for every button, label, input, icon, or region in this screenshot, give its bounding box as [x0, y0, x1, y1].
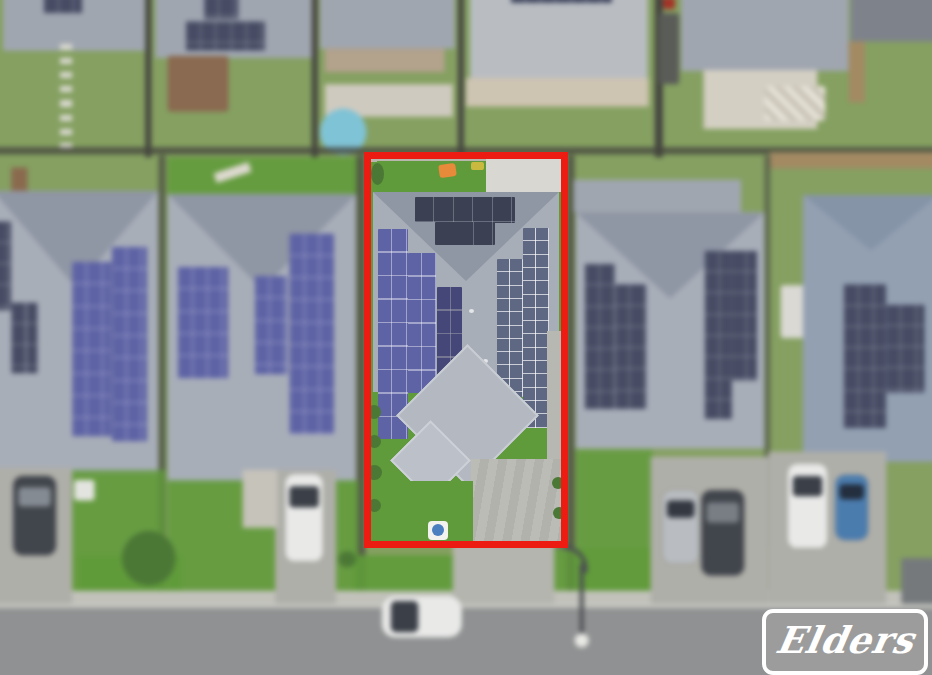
rear-neighbor-roof-4: [681, 0, 848, 71]
street-light-pole: [580, 563, 584, 640]
shrub: [338, 551, 356, 567]
bin: [74, 480, 94, 500]
solar-array: [178, 267, 229, 379]
tan-fence: [769, 152, 932, 168]
car-on-road: [382, 596, 462, 638]
aerial-listing-photo: Elders: [0, 0, 932, 675]
solar-array: [112, 247, 148, 442]
solar-array: [255, 276, 287, 374]
parked-car: [788, 464, 828, 548]
side-yard-items: [659, 13, 679, 84]
property-boundary-outline: [364, 152, 568, 548]
outdoor-furniture: [764, 86, 825, 121]
street-light-base: [575, 633, 589, 647]
parked-car: [663, 490, 699, 563]
rear-neighbor-roof-3: [320, 0, 455, 49]
solar-array: [732, 251, 757, 381]
rear-neighbor-roof-5: [851, 0, 932, 42]
parked-car: [13, 476, 56, 555]
timber-deck: [168, 56, 229, 112]
fence: [145, 0, 151, 157]
driveway-crossing: [453, 544, 555, 607]
elders-logo-text: Elders: [772, 622, 917, 663]
porch-path: [243, 470, 278, 528]
neighbor-house-wall: [325, 49, 445, 72]
solar-array: [886, 305, 925, 393]
fence: [312, 0, 318, 157]
solar-array: [844, 284, 887, 428]
right-neighbor-rear-roof: [574, 180, 741, 212]
solar-array: [705, 251, 732, 419]
solar-array: [615, 284, 646, 409]
solar-array: [511, 0, 613, 3]
verge-tree: [122, 531, 176, 586]
fence: [458, 0, 464, 157]
solar-array: [0, 221, 11, 310]
neighbor-paving: [466, 78, 649, 106]
solar-array: [289, 233, 334, 434]
solar-array: [72, 262, 112, 437]
neighbor-garage-roof: [470, 0, 648, 82]
solar-array: [11, 302, 37, 373]
parked-car: [701, 490, 744, 575]
solar-array: [204, 0, 239, 19]
elders-logo: Elders: [762, 609, 928, 675]
parked-car: [835, 475, 867, 540]
red-object: [663, 0, 675, 9]
neighbor-back-lawn: [168, 157, 359, 198]
grass-verge: [353, 555, 462, 594]
tan-fence: [849, 42, 865, 103]
solar-array: [44, 0, 83, 13]
stepping-stones: [60, 44, 72, 150]
solar-array: [186, 21, 265, 50]
solar-array: [585, 264, 615, 409]
parked-car: [285, 474, 323, 561]
